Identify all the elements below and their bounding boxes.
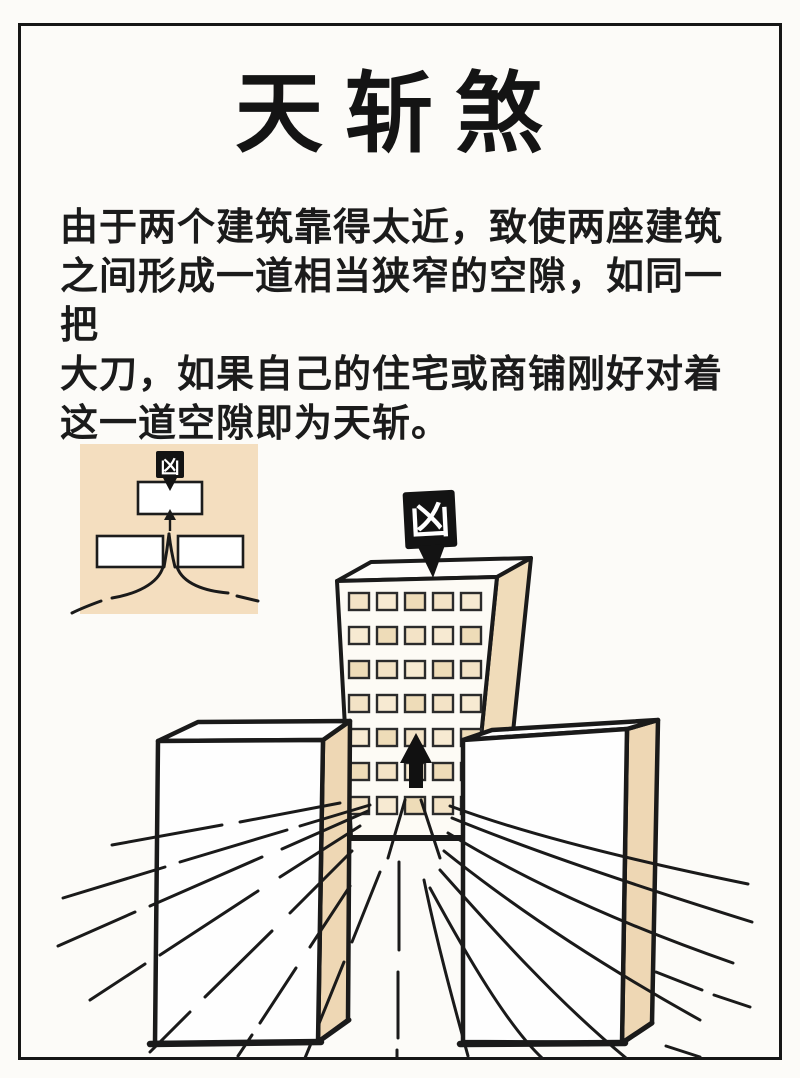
window xyxy=(349,695,369,712)
window xyxy=(377,763,397,780)
window xyxy=(461,593,481,610)
window xyxy=(377,627,397,644)
window xyxy=(377,661,397,678)
right-building-base-line xyxy=(460,1043,625,1044)
left-building-base-line xyxy=(150,1042,321,1044)
window xyxy=(405,593,425,610)
window xyxy=(461,661,481,678)
window xyxy=(349,661,369,678)
bad-luck-marker-label: 凶 xyxy=(409,498,451,544)
window xyxy=(461,695,481,712)
window xyxy=(433,593,453,610)
window xyxy=(349,763,369,780)
window xyxy=(349,627,369,644)
window xyxy=(377,593,397,610)
window xyxy=(377,695,397,712)
inset-bad-luck-marker-label: 凶 xyxy=(160,457,179,478)
window xyxy=(405,661,425,678)
window xyxy=(433,661,453,678)
inset-left-building xyxy=(97,536,163,567)
window xyxy=(349,593,369,610)
window xyxy=(377,797,397,814)
infographic-page: 天斩煞 由于两个建筑靠得太近，致使两座建筑 之间形成一道相当狭窄的空隙，如同一把… xyxy=(0,0,800,1078)
window xyxy=(433,627,453,644)
window xyxy=(461,627,481,644)
window xyxy=(405,627,425,644)
window xyxy=(433,695,453,712)
center-gap-dashed-line xyxy=(397,862,399,1057)
window xyxy=(405,695,425,712)
window xyxy=(433,763,453,780)
window xyxy=(433,729,453,746)
window xyxy=(377,729,397,746)
inset-diagram: 凶 xyxy=(72,444,258,614)
inset-right-building xyxy=(178,536,243,567)
buildings-illustration: 凶 xyxy=(0,0,800,1078)
